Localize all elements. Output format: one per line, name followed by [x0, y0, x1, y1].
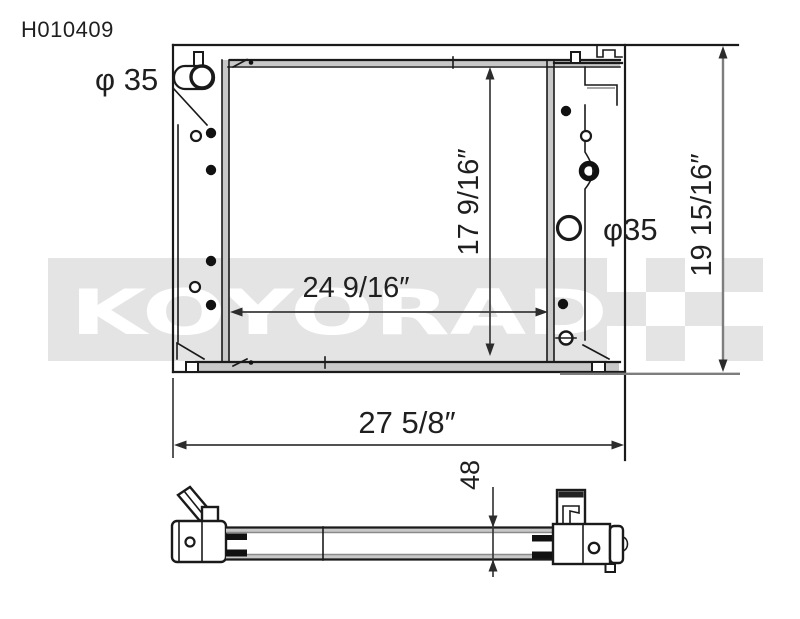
right-tank-top	[553, 524, 610, 564]
mount-hole	[206, 300, 216, 310]
left-tank-top	[172, 521, 226, 562]
left-foot	[186, 362, 198, 372]
filler-neck	[597, 45, 622, 57]
inlet-pipe-circle	[191, 66, 213, 88]
right-foot	[592, 362, 605, 372]
mount-hole	[206, 256, 216, 266]
mount-hole	[561, 106, 571, 116]
core-height-dimension: 17 9/16″	[453, 148, 485, 255]
core-thickness-dimension: 48	[455, 460, 485, 490]
grommet	[582, 164, 597, 179]
inlet-diameter-label: φ 35	[95, 62, 158, 97]
overall-height-dimension: 19 15/16″	[686, 153, 718, 276]
overall-width-dimension: 27 5/8″	[358, 405, 455, 440]
radiator-bottom-view	[172, 487, 628, 572]
mount-hole	[558, 299, 568, 309]
mount-hole	[206, 128, 216, 138]
watermark-checkerboard	[607, 258, 763, 361]
core-width-dimension: 24 9/16″	[302, 272, 409, 304]
radiator-technical-drawing: KOYORAD	[0, 0, 800, 619]
outlet-pipe-circle	[558, 217, 581, 240]
drawing-canvas: KOYORAD	[0, 0, 800, 619]
core-band	[226, 527, 553, 560]
mount-hole	[206, 165, 216, 175]
part-number: H010409	[21, 17, 114, 42]
outlet-diameter-label: φ35	[603, 212, 658, 247]
